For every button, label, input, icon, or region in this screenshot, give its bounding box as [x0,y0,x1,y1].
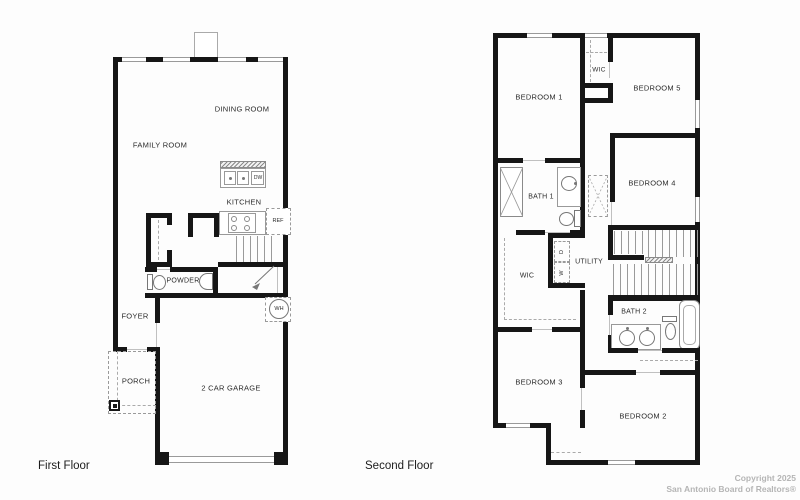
label-garage: 2 CAR GARAGE [201,384,260,393]
porch-post [109,400,120,411]
door-opening [611,202,612,225]
label-porch: PORCH [122,377,150,386]
wall [113,57,118,352]
stairs [236,236,276,263]
window [527,33,552,38]
shower-x [500,167,523,217]
window [506,423,530,428]
toilet-bowl [665,323,676,340]
wic-shelf-line [586,52,607,53]
label-wic-mid: WIC [520,273,534,280]
wall [608,83,613,103]
wall [546,423,551,465]
wall [608,255,644,260]
wall [608,225,613,258]
door-opening [532,329,552,330]
window [122,57,146,62]
wall [583,370,636,375]
faucet [574,182,577,185]
label-foyer: FOYER [121,312,148,321]
label-bath1: BATH 1 [528,194,554,201]
window [695,197,700,222]
wall [552,327,585,332]
toilet-tank [662,316,677,322]
stair-railing [645,257,673,263]
wall [145,267,157,272]
wic-shelf-line [590,40,591,82]
toilet-bowl [559,212,574,226]
window [695,100,700,128]
label-bedroom2: BEDROOM 2 [619,412,666,421]
wall [545,158,583,163]
stairs-lower [613,264,700,295]
burner [231,216,237,222]
sink [639,330,655,346]
wall [498,327,532,332]
window [258,57,283,62]
wall [608,301,613,315]
front-door-opening [127,349,147,350]
label-dining-room: DINING ROOM [215,105,269,114]
wall [498,158,523,163]
refrigerator-label: REF [273,218,284,224]
sink-drain [229,177,232,180]
label-powder: POWDER [167,278,200,285]
wall [660,370,700,375]
copyright-line2: San Antonio Board of Realtors® [666,484,796,495]
toilet-tank [574,210,581,227]
wall [580,410,585,428]
door-opening [636,372,660,373]
burner [244,225,250,231]
window [608,460,635,465]
wall [146,213,151,267]
label-bedroom1: BEDROOM 1 [515,93,562,102]
label-bedroom4: BEDROOM 4 [628,179,675,188]
copyright-notice: Copyright 2025 San Antonio Board of Real… [666,473,796,495]
wall [188,213,193,237]
copyright-line1: Copyright 2025 [666,473,796,484]
label-bedroom3: BEDROOM 3 [515,378,562,387]
label-utility: UTILITY [575,259,603,266]
burner [244,216,250,222]
dishwasher-label: DW [254,175,262,181]
closet-rod-line [640,360,698,361]
wic-shelf-line [504,319,576,320]
label-bath2: BATH 2 [621,309,647,316]
wall [283,57,288,465]
wall [610,138,615,202]
window [585,33,607,38]
stair-line [277,267,278,293]
floor-plan-image: REF DW WH [0,0,800,500]
stairs-landing [614,231,646,254]
faucet [646,327,649,330]
wall [608,348,638,353]
wall [516,230,545,235]
sink [199,273,213,290]
toilet-bowl [153,275,166,290]
stair-direction-arrow [242,264,276,290]
stairs-upper [648,230,700,257]
label-bedroom5: BEDROOM 5 [633,84,680,93]
wall [548,283,585,288]
porch-inner-line [117,405,156,406]
door-opening [156,323,157,347]
water-heater-label: WH [274,306,283,312]
door-opening [609,315,610,335]
closet-rod-line [551,452,581,453]
wall [608,38,613,62]
door-opening [638,350,662,351]
washer-label: W [559,270,565,275]
wall [170,267,218,272]
faucet [626,327,629,330]
porch-inner-line [117,351,118,406]
wall [155,295,160,323]
linen-closet-x [588,175,608,217]
dryer-label: D [559,250,565,254]
burner [231,225,237,231]
door-opening [609,62,610,78]
door-opening [523,160,545,161]
wall [548,233,585,238]
garage-door [169,456,274,463]
wall [155,452,169,465]
door-opening [157,269,170,270]
wall [167,213,172,225]
chimney [194,32,218,60]
first-floor-title: First Floor [38,460,90,472]
bathtub-inner [683,305,696,345]
sink-drain [242,177,245,180]
label-kitchen: KITCHEN [227,198,262,207]
wall [274,452,288,465]
pantry-shelf-line [158,220,159,260]
island-bar-top [220,161,266,168]
wall [610,133,700,138]
wall [548,233,553,288]
door-opening [581,388,582,410]
label-wic-upper: WIC [592,67,605,74]
wall [167,250,172,267]
sink [619,330,635,346]
wall [493,33,498,428]
window [218,57,246,62]
wall [662,348,700,353]
label-family-room: FAMILY ROOM [133,141,187,150]
wic-shelf-line [504,238,505,320]
window [163,57,190,62]
second-floor-title: Second Floor [365,460,433,472]
